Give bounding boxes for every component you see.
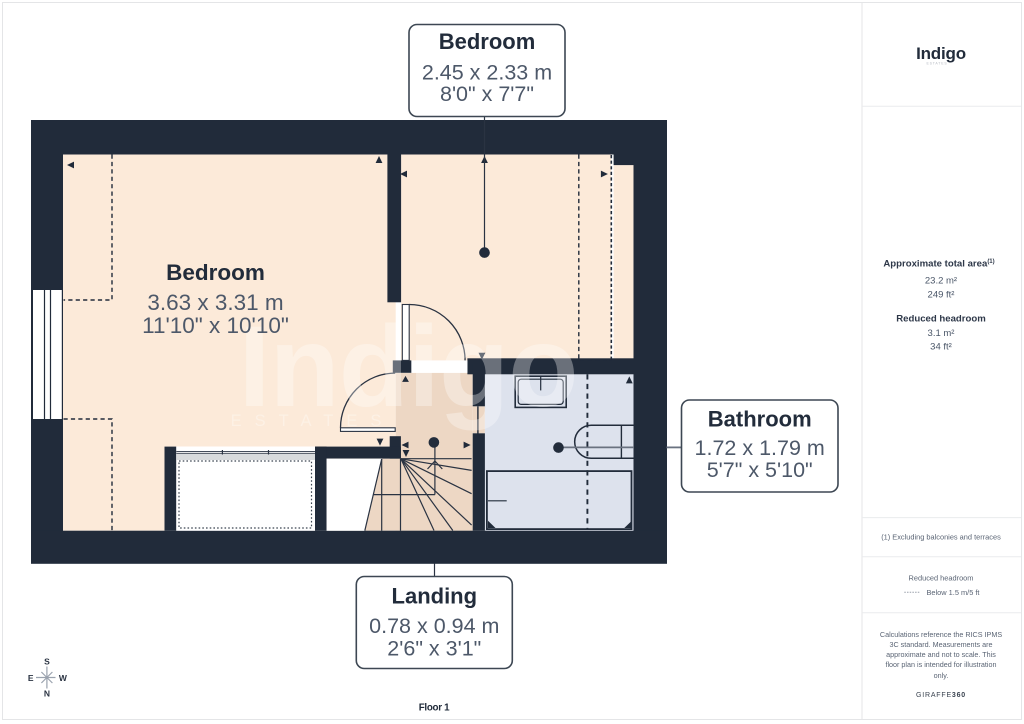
svg-text:E: E <box>28 673 34 683</box>
svg-text:S: S <box>44 656 50 666</box>
svg-text:5'7" x 5'10": 5'7" x 5'10" <box>707 458 813 482</box>
svg-text:3.1 m²: 3.1 m² <box>928 328 955 339</box>
svg-text:34 ft²: 34 ft² <box>930 342 952 353</box>
svg-text:W: W <box>59 673 68 683</box>
svg-text:ESTATES: ESTATES <box>231 412 395 430</box>
svg-text:3C standard. Measurements are: 3C standard. Measurements are <box>889 640 992 649</box>
svg-text:Bathroom: Bathroom <box>708 407 812 432</box>
svg-text:GIRAFFE360: GIRAFFE360 <box>916 692 966 699</box>
svg-text:Bedroom: Bedroom <box>166 260 265 285</box>
svg-text:0.78 x 0.94 m: 0.78 x 0.94 m <box>369 614 499 638</box>
svg-text:(1) Excluding balconies and te: (1) Excluding balconies and terraces <box>881 533 1001 542</box>
svg-text:1.72 x 1.79 m: 1.72 x 1.79 m <box>695 436 825 460</box>
svg-text:2.45 x 2.33 m: 2.45 x 2.33 m <box>422 61 552 85</box>
svg-text:2'6" x 3'1": 2'6" x 3'1" <box>387 636 481 660</box>
svg-text:23.2 m²: 23.2 m² <box>925 276 957 287</box>
svg-text:Reduced headroom: Reduced headroom <box>896 314 986 325</box>
svg-text:only.: only. <box>934 671 949 680</box>
svg-text:approximate and not to scale.: approximate and not to scale. This <box>886 650 996 659</box>
svg-text:Below 1.5 m/5 ft: Below 1.5 m/5 ft <box>927 588 980 597</box>
svg-text:8'0" x 7'7": 8'0" x 7'7" <box>440 82 534 106</box>
svg-text:Indigo: Indigo <box>916 44 966 63</box>
svg-text:Bedroom: Bedroom <box>439 29 536 54</box>
svg-text:floor plan is intended for ill: floor plan is intended for illustration <box>885 660 996 669</box>
svg-text:Approximate total area(1): Approximate total area(1) <box>883 259 994 270</box>
svg-text:11'10" x 10'10": 11'10" x 10'10" <box>142 313 289 338</box>
svg-text:249 ft²: 249 ft² <box>928 290 955 301</box>
svg-text:Calculations reference the RIC: Calculations reference the RICS IPMS <box>880 630 1002 639</box>
svg-text:Landing: Landing <box>392 584 478 609</box>
svg-text:3.63 x 3.31 m: 3.63 x 3.31 m <box>147 290 283 315</box>
svg-text:Floor 1: Floor 1 <box>419 703 450 714</box>
svg-text:ESTATES: ESTATES <box>926 62 947 66</box>
svg-text:N: N <box>44 689 50 699</box>
svg-text:Reduced headroom: Reduced headroom <box>909 574 974 583</box>
